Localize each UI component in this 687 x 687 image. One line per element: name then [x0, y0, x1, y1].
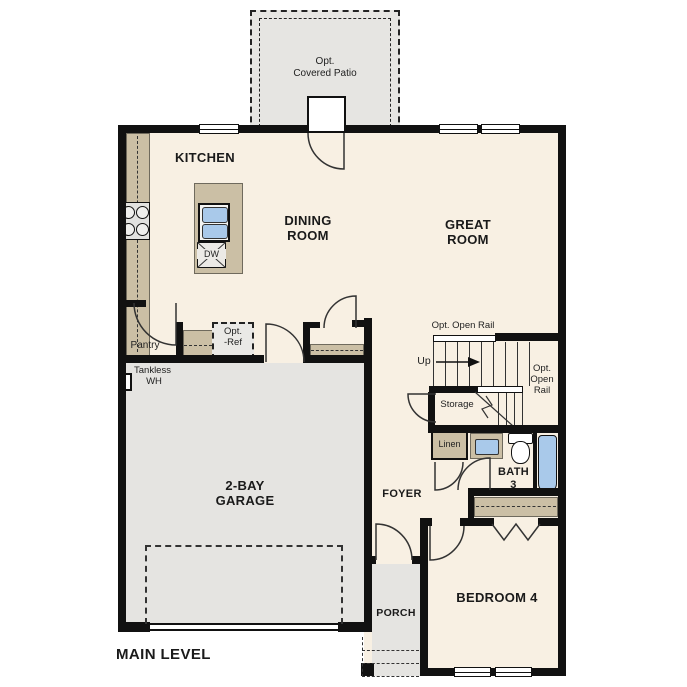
exterior-wall-right — [558, 125, 566, 676]
kitchen-bottom-wall-a — [118, 355, 264, 363]
up-arrow-icon — [436, 355, 482, 369]
pantry-door-swing — [132, 301, 180, 349]
garage-label: 2-BAY GARAGE — [200, 478, 290, 509]
stair-tread — [517, 342, 518, 386]
rail-right-line3: Rail — [524, 386, 560, 397]
great-line2: ROOM — [428, 232, 508, 247]
porch-label: PORCH — [372, 607, 420, 619]
tankless-label: Tankless WH — [134, 366, 186, 388]
stair-tread — [493, 342, 494, 386]
bedroom4-label: BEDROOM 4 — [443, 590, 551, 605]
window — [495, 667, 532, 677]
exterior-wall-left — [118, 125, 126, 632]
toilet-bowl — [511, 441, 530, 464]
patio-label-line2: Covered Patio — [262, 68, 388, 80]
garage-entry-door-swing — [264, 318, 308, 364]
closet-shelf-dashed-line — [476, 506, 556, 507]
main-level-title: MAIN LEVEL — [116, 646, 236, 664]
stair-top-wall — [495, 333, 566, 341]
storage-label: Storage — [434, 400, 480, 411]
linen-door-swing — [431, 458, 467, 494]
window — [199, 124, 239, 134]
opt-ref-label: Opt. -Ref — [213, 327, 253, 349]
up-label: Up — [414, 355, 434, 367]
storage-door-swing — [404, 390, 438, 424]
window — [454, 667, 491, 677]
vanity-sink — [475, 439, 499, 455]
window — [481, 124, 520, 134]
garage-door-opening — [150, 623, 338, 631]
great-line1: GREAT — [428, 217, 508, 232]
garage-line2: GARAGE — [200, 493, 290, 508]
kitchen-bottom-wall-b — [304, 355, 372, 363]
stair-rail-top — [433, 335, 496, 342]
bedroom-closet-shelf — [474, 497, 558, 517]
sink-basin — [202, 224, 228, 239]
great-room-label: GREAT ROOM — [428, 217, 508, 248]
open-rail-right-label: Opt. Open Rail — [524, 364, 560, 397]
garage-right-wall — [364, 318, 372, 624]
patio-label-line1: Opt. — [262, 56, 388, 68]
burner-icon — [136, 223, 149, 236]
foyer-label: FOYER — [378, 488, 426, 501]
patio-label: Opt. Covered Patio — [262, 56, 388, 79]
kitchen-label: KITCHEN — [166, 150, 244, 165]
stair-tread — [522, 393, 523, 425]
garage-bottom-stub-right — [338, 622, 372, 632]
dining-line1: DINING — [270, 213, 346, 228]
opt-ref-line2: -Ref — [213, 338, 253, 349]
porch-step-dashed — [362, 676, 419, 677]
front-door-swing — [372, 520, 414, 562]
porch-step-dashed — [362, 637, 363, 677]
porch-step-dashed — [362, 650, 419, 651]
floor-plan: Opt. Covered Patio DW Pantry Opt. -Ref T… — [0, 0, 687, 687]
closet-bifold-doors — [492, 522, 540, 542]
garage-door-dashed-track — [145, 545, 343, 624]
window — [439, 124, 478, 134]
patio-door-swing — [306, 131, 348, 173]
sink-basin — [202, 207, 228, 223]
coat-closet-door-swing — [320, 292, 358, 330]
dining-line2: ROOM — [270, 228, 346, 243]
dining-room-label: DINING ROOM — [270, 213, 346, 244]
tankless-line2: WH — [134, 377, 174, 388]
burner-icon — [136, 206, 149, 219]
linen-label: Linen — [432, 439, 467, 449]
bedroom-door-swing — [426, 524, 466, 564]
stair-tread — [505, 342, 506, 386]
closet-shelf-dashed-line — [311, 350, 363, 351]
garage-line1: 2-BAY — [200, 478, 290, 493]
patio-door-jamb — [307, 96, 346, 133]
porch-floor — [372, 564, 420, 676]
open-rail-top-label: Opt. Open Rail — [424, 321, 502, 332]
porch-step-dashed — [362, 663, 419, 664]
dishwasher-label: DW — [197, 249, 226, 259]
bath3-line1: BATH — [486, 466, 541, 479]
